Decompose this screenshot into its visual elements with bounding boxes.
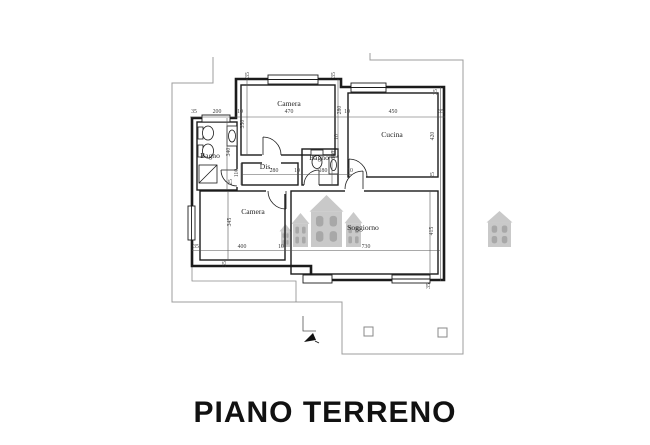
room-label: Cucina	[381, 130, 403, 139]
dimension-label: 10	[334, 134, 340, 140]
room-label: Camera	[277, 99, 301, 108]
dimension-label: 10	[347, 168, 353, 174]
dimension-label: 450	[389, 109, 398, 115]
house-watermark-icon	[487, 211, 513, 247]
dimension-label: 35	[426, 283, 432, 289]
dimension-label: 340	[226, 148, 232, 157]
window	[202, 115, 230, 122]
room-label: Soggiorno	[347, 223, 379, 232]
dimension-labels: 3520010470104503528010180103540010730353…	[191, 72, 444, 289]
door-gap	[266, 187, 287, 194]
room-label: Dis.	[260, 162, 273, 171]
lot-boundary	[172, 53, 463, 354]
dimension-label: 10	[237, 109, 243, 115]
dimension-label: 200	[213, 109, 222, 115]
sink-basin	[331, 160, 337, 171]
dimension-label: 730	[362, 244, 371, 250]
dimension-label: 35	[245, 72, 251, 78]
entrance-arrow-icon	[303, 316, 319, 343]
dimension-label: 35	[433, 89, 439, 95]
dimension-label: 345	[227, 218, 233, 227]
room-label: Bagno	[309, 153, 329, 162]
sink-basin	[229, 130, 236, 142]
dimension-label: 35	[331, 72, 337, 78]
dimension-label: 180	[331, 151, 337, 160]
dimension-label: 35	[193, 244, 199, 250]
dimension-label: 110	[234, 169, 240, 178]
watermark-houses	[280, 195, 513, 247]
dimension-label: 400	[238, 244, 247, 250]
dimension-label: 25	[228, 179, 234, 185]
room-label: Bagno	[200, 151, 220, 160]
window	[303, 275, 332, 283]
terrace-step-outline	[192, 266, 296, 302]
house-watermark-icon	[292, 213, 310, 247]
dimension-label: 35	[438, 109, 444, 115]
dimension-label: 10	[344, 109, 350, 115]
dimension-label: 10	[278, 244, 284, 250]
door-gap	[345, 186, 364, 193]
dimension-label: 35	[222, 261, 228, 267]
toilet-bowl	[203, 126, 214, 140]
door-gap	[349, 173, 366, 180]
dimension-label: 470	[285, 109, 294, 115]
house-watermark-icon	[310, 195, 344, 247]
dimension-label: 420	[430, 132, 436, 141]
floorplan-drawing: 3520010470104503528010180103540010730353…	[0, 0, 650, 445]
pillar-marker	[364, 327, 373, 336]
pillar-marker	[438, 328, 447, 337]
room-outline-camera-top	[241, 85, 335, 155]
dimension-label: 415	[429, 227, 435, 236]
dimension-label: 280	[337, 106, 343, 115]
dimension-label: 180	[319, 168, 328, 174]
dimension-label: 35	[191, 109, 197, 115]
floorplan-page: 3520010470104503528010180103540010730353…	[0, 0, 650, 445]
dimension-label: 10	[294, 168, 300, 174]
dimension-label: 25	[430, 172, 436, 178]
dimension-label: 350	[240, 120, 246, 129]
door-gap	[304, 182, 319, 189]
room-label: Camera	[241, 207, 265, 216]
floor-title: PIANO TERRENO	[0, 396, 650, 430]
